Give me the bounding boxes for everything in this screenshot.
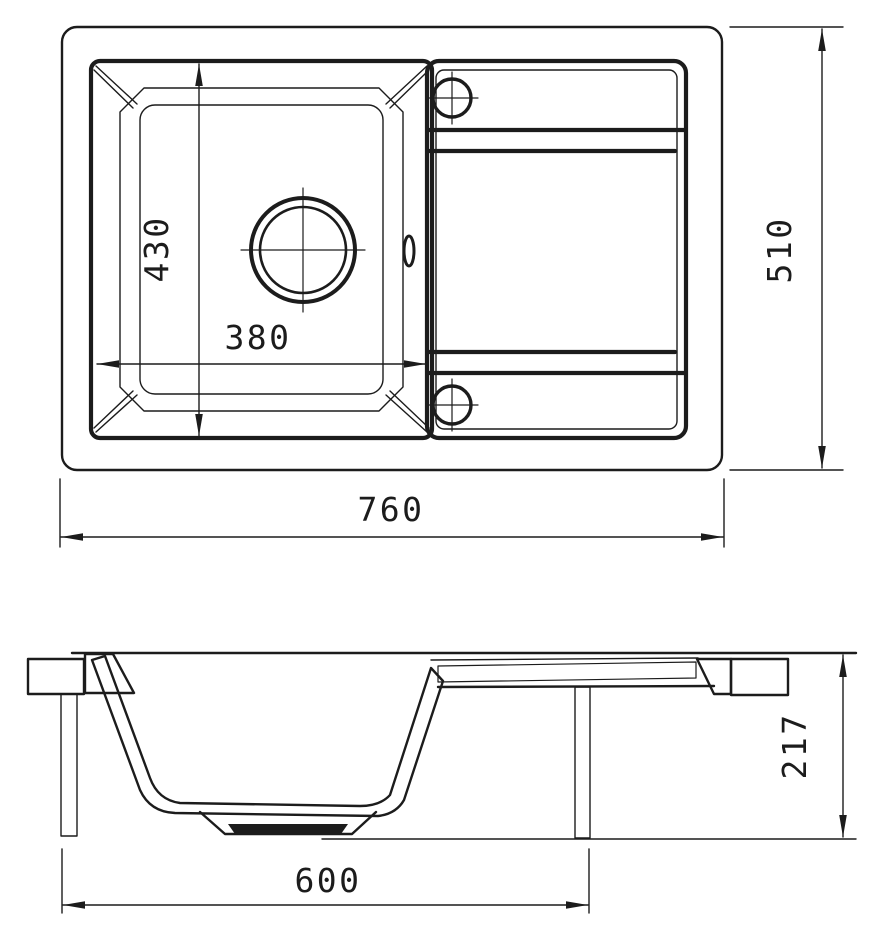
drainboard-inner-contour: [436, 70, 677, 429]
dim-overall-height-label: 217: [775, 712, 814, 779]
dimension-overall-length: 760: [60, 479, 724, 547]
dimension-basin-width: 380: [97, 318, 426, 364]
drainboard-outline: [427, 61, 686, 438]
section-view: 600 217: [28, 653, 856, 913]
dim-overall-length-label: 760: [357, 490, 424, 529]
sink-drawing-svg: 430 380 510 760: [0, 0, 885, 950]
dim-basin-width-label: 380: [224, 318, 291, 357]
counter-block-left: [28, 659, 84, 694]
drain-hole: [241, 188, 365, 312]
dimension-overall-width: 510: [730, 27, 843, 470]
dimension-base-length: 600: [62, 849, 589, 913]
sink-rim-edge-right: [697, 659, 731, 694]
dim-basin-depth-label: 430: [137, 215, 176, 282]
overflow-slot: [404, 236, 414, 266]
counter-block-right: [731, 659, 788, 695]
support-strip-center: [575, 687, 590, 838]
top-view: 430 380 510 760: [60, 27, 843, 547]
basin-section-wall: [92, 656, 443, 816]
technical-drawing-canvas: 430 380 510 760: [0, 0, 885, 950]
dimension-basin-depth: 430: [137, 64, 199, 436]
support-strip-left: [61, 694, 77, 836]
dimension-overall-height: 217: [775, 655, 843, 837]
drainboard-section: [431, 658, 714, 687]
dim-base-length-label: 600: [294, 861, 361, 900]
dim-overall-width-label: 510: [760, 216, 799, 283]
drainboard: [426, 61, 686, 438]
